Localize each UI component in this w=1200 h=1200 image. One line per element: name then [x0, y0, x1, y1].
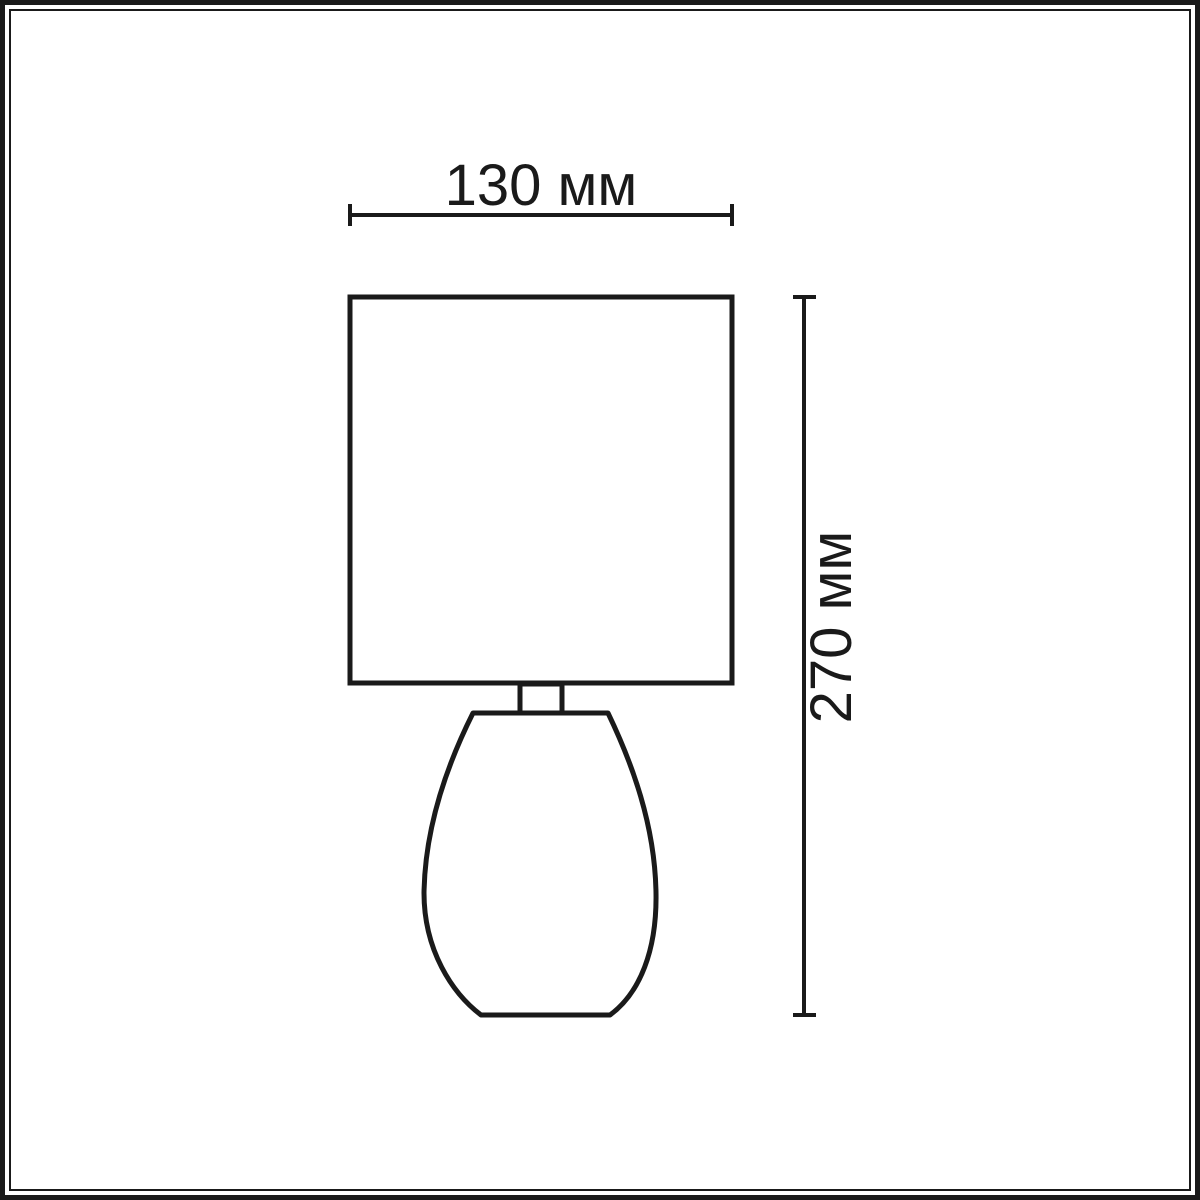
diagram-canvas: 130 мм 270 мм [0, 0, 1200, 1200]
lampshade-outline [350, 297, 732, 683]
height-dimension-label: 270 мм [803, 477, 861, 777]
lamp-neck-outline [520, 684, 562, 713]
lamp-base-outline [424, 713, 656, 1015]
width-dimension-label: 130 мм [350, 156, 732, 216]
